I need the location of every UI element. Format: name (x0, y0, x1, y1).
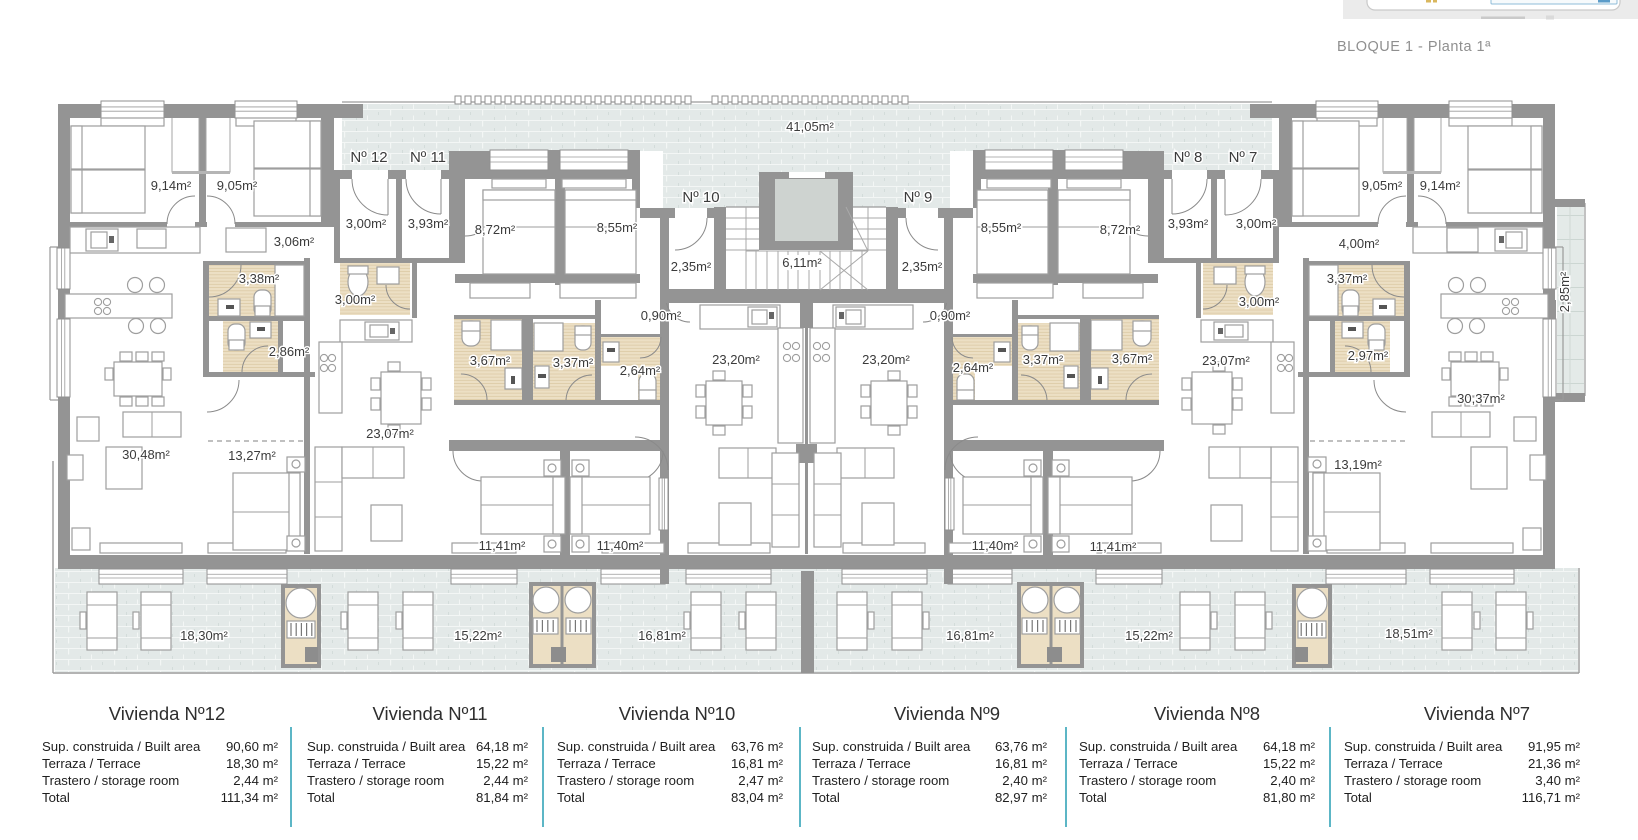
svg-text:30,37m²: 30,37m² (1457, 391, 1505, 406)
svg-text:Nº 9: Nº 9 (904, 189, 933, 206)
svg-text:15,22m²: 15,22m² (454, 628, 502, 643)
svg-text:Trastero / storage room: Trastero / storage room (42, 773, 179, 788)
svg-text:3,40 m²: 3,40 m² (1535, 773, 1580, 788)
svg-text:BLOQUE 1 - Planta 1ª: BLOQUE 1 - Planta 1ª (1337, 39, 1491, 55)
svg-text:2,64m²: 2,64m² (953, 360, 994, 375)
svg-text:Trastero / storage room: Trastero / storage room (307, 773, 444, 788)
svg-text:9,05m²: 9,05m² (217, 178, 258, 193)
svg-text:16,81 m²: 16,81 m² (995, 756, 1048, 771)
svg-text:Vivienda Nº10: Vivienda Nº10 (619, 703, 735, 724)
svg-text:Vivienda Nº8: Vivienda Nº8 (1154, 703, 1260, 724)
svg-text:Sup. construida / Built area: Sup. construida / Built area (42, 739, 201, 754)
svg-text:Sup. construida / Built area: Sup. construida / Built area (1079, 739, 1238, 754)
svg-text:8,55m²: 8,55m² (981, 220, 1022, 235)
svg-text:11,41m²: 11,41m² (479, 538, 526, 553)
svg-text:3,93m²: 3,93m² (1168, 216, 1209, 231)
svg-text:Sup. construida / Built area: Sup. construida / Built area (307, 739, 466, 754)
svg-text:2,64m²: 2,64m² (620, 363, 661, 378)
svg-text:4,00m²: 4,00m² (1339, 236, 1380, 251)
svg-text:0,90m²: 0,90m² (641, 308, 682, 323)
svg-text:64,18 m²: 64,18 m² (1263, 739, 1316, 754)
svg-text:3,06m²: 3,06m² (274, 234, 315, 249)
svg-text:Nº 12: Nº 12 (350, 149, 387, 166)
svg-text:Trastero / storage room: Trastero / storage room (1344, 773, 1481, 788)
svg-text:11,40m²: 11,40m² (597, 538, 644, 553)
svg-text:Sup. construida / Built area: Sup. construida / Built area (557, 739, 716, 754)
svg-text:Terraza / Terrace: Terraza / Terrace (557, 756, 656, 771)
svg-text:18,30 m²: 18,30 m² (226, 756, 279, 771)
svg-text:Nº 10: Nº 10 (682, 189, 719, 206)
svg-text:11,41m²: 11,41m² (1090, 539, 1137, 554)
svg-text:3,00m²: 3,00m² (1236, 216, 1277, 231)
svg-text:9,05m²: 9,05m² (1362, 178, 1403, 193)
svg-text:Vivienda Nº11: Vivienda Nº11 (372, 703, 487, 724)
svg-text:91,95 m²: 91,95 m² (1528, 739, 1581, 754)
svg-text:2,40 m²: 2,40 m² (1002, 773, 1047, 788)
svg-text:23,20m²: 23,20m² (712, 352, 760, 367)
svg-text:Vivienda Nº12: Vivienda Nº12 (109, 703, 225, 724)
svg-text:16,81m²: 16,81m² (638, 628, 686, 643)
svg-text:0,90m²: 0,90m² (930, 308, 971, 323)
svg-text:9,14m²: 9,14m² (1420, 178, 1461, 193)
svg-text:Terraza / Terrace: Terraza / Terrace (812, 756, 911, 771)
svg-text:23,07m²: 23,07m² (1202, 353, 1250, 368)
svg-text:2,40 m²: 2,40 m² (1270, 773, 1315, 788)
svg-text:30,48m²: 30,48m² (122, 447, 170, 462)
svg-text:18,51m²: 18,51m² (1385, 626, 1433, 641)
svg-text:Total: Total (557, 790, 585, 805)
svg-text:13,27m²: 13,27m² (228, 448, 276, 463)
svg-text:3,00m²: 3,00m² (346, 216, 387, 231)
svg-text:Nº 11: Nº 11 (410, 149, 446, 166)
svg-text:2,44 m²: 2,44 m² (233, 773, 278, 788)
svg-text:15,22m²: 15,22m² (1125, 628, 1173, 643)
svg-text:3,37m²: 3,37m² (1327, 271, 1368, 286)
svg-text:82,97 m²: 82,97 m² (995, 790, 1048, 805)
svg-text:2,85m²: 2,85m² (1557, 271, 1572, 312)
svg-text:Trastero / storage room: Trastero / storage room (557, 773, 694, 788)
svg-text:64,18 m²: 64,18 m² (476, 739, 529, 754)
svg-text:81,80 m²: 81,80 m² (1263, 790, 1316, 805)
svg-text:2,86m²: 2,86m² (269, 344, 310, 359)
svg-text:15,22 m²: 15,22 m² (1263, 756, 1316, 771)
svg-text:2,47 m²: 2,47 m² (738, 773, 783, 788)
svg-text:8,72m²: 8,72m² (1100, 222, 1141, 237)
svg-text:41,05m²: 41,05m² (786, 119, 834, 134)
svg-text:3,67m²: 3,67m² (470, 353, 511, 368)
svg-text:13,19m²: 13,19m² (1334, 457, 1382, 472)
svg-text:Vivienda Nº9: Vivienda Nº9 (894, 703, 1000, 724)
svg-text:3,00m²: 3,00m² (1239, 294, 1280, 309)
svg-text:Terraza / Terrace: Terraza / Terrace (307, 756, 406, 771)
svg-text:83,04 m²: 83,04 m² (731, 790, 784, 805)
svg-text:2,44 m²: 2,44 m² (483, 773, 528, 788)
svg-text:Sup. construida / Built area: Sup. construida / Built area (812, 739, 971, 754)
svg-text:2,97m²: 2,97m² (1348, 348, 1389, 363)
svg-text:Total: Total (812, 790, 840, 805)
svg-text:Trastero / storage room: Trastero / storage room (812, 773, 949, 788)
svg-text:90,60 m²: 90,60 m² (226, 739, 279, 754)
svg-text:16,81m²: 16,81m² (946, 628, 994, 643)
svg-text:81,84 m²: 81,84 m² (476, 790, 529, 805)
svg-text:Vivienda Nº7: Vivienda Nº7 (1424, 703, 1530, 724)
svg-text:Total: Total (1079, 790, 1107, 805)
svg-text:Terraza / Terrace: Terraza / Terrace (42, 756, 141, 771)
svg-text:Total: Total (1344, 790, 1372, 805)
svg-text:6,11m²: 6,11m² (782, 255, 822, 270)
svg-text:3,00m²: 3,00m² (335, 292, 376, 307)
svg-text:18,30m²: 18,30m² (180, 628, 228, 643)
svg-text:8,55m²: 8,55m² (597, 220, 638, 235)
svg-text:9,14m²: 9,14m² (151, 178, 192, 193)
svg-text:111,34 m²: 111,34 m² (221, 790, 279, 805)
svg-text:63,76 m²: 63,76 m² (995, 739, 1048, 754)
svg-text:23,07m²: 23,07m² (366, 426, 414, 441)
svg-text:11,40m²: 11,40m² (972, 538, 1019, 553)
svg-text:3,38m²: 3,38m² (239, 271, 280, 286)
svg-text:Sup. construida / Built area: Sup. construida / Built area (1344, 739, 1503, 754)
svg-text:23,20m²: 23,20m² (862, 352, 910, 367)
svg-text:63,76 m²: 63,76 m² (731, 739, 784, 754)
svg-text:8,72m²: 8,72m² (475, 222, 516, 237)
svg-text:Nº 7: Nº 7 (1229, 149, 1258, 166)
svg-text:3,93m²: 3,93m² (408, 216, 449, 231)
svg-text:16,81 m²: 16,81 m² (731, 756, 784, 771)
svg-text:2,35m²: 2,35m² (902, 259, 943, 274)
svg-text:Total: Total (307, 790, 335, 805)
svg-text:3,67m²: 3,67m² (1112, 351, 1153, 366)
svg-text:3,37m²: 3,37m² (553, 355, 594, 370)
svg-text:Terraza / Terrace: Terraza / Terrace (1344, 756, 1443, 771)
svg-text:Trastero / storage room: Trastero / storage room (1079, 773, 1216, 788)
svg-text:15,22 m²: 15,22 m² (476, 756, 529, 771)
svg-text:21,36 m²: 21,36 m² (1528, 756, 1581, 771)
svg-text:2,35m²: 2,35m² (671, 259, 712, 274)
svg-text:3,37m²: 3,37m² (1023, 352, 1064, 367)
svg-text:Total: Total (42, 790, 70, 805)
svg-text:Nº 8: Nº 8 (1174, 149, 1203, 166)
svg-text:116,71 m²: 116,71 m² (1522, 790, 1581, 805)
svg-text:Terraza / Terrace: Terraza / Terrace (1079, 756, 1178, 771)
